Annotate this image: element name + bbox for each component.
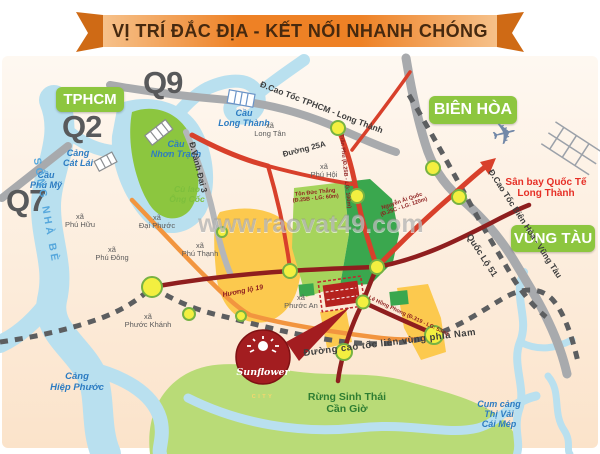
node-zone-west xyxy=(283,264,297,278)
label-xa-phu-dong: xã Phú Đông xyxy=(87,246,137,263)
watermark: www.raovat49.com xyxy=(198,210,400,238)
label-cum-cang-thi-vai: Cụm cảng Thị Vải Cái Mép xyxy=(458,399,540,429)
ribbon-end-right xyxy=(497,12,524,52)
node-center xyxy=(370,260,384,274)
node-north xyxy=(331,121,345,135)
label-xa-phuoc-khanh: xã Phước Khánh xyxy=(118,313,178,330)
node-west xyxy=(142,277,162,297)
label-forest-can-gio: Rừng Sinh Thái Cần Giờ xyxy=(296,392,398,416)
node-expwy-west xyxy=(183,308,195,320)
district-q2: Q2 xyxy=(62,110,101,145)
label-cang-cat-lai: Cảng Cát Lái xyxy=(52,148,104,168)
label-cang-hiep-phuoc: Cảng Hiệp Phước xyxy=(41,372,113,393)
district-q9: Q9 xyxy=(143,66,182,101)
node-ql51-south xyxy=(452,190,466,204)
label-xa-long-tan: xã Long Tân xyxy=(245,122,295,139)
label-cau-nhon-trach: Cầu Nhơn Trạch xyxy=(140,139,212,159)
ribbon-end-left xyxy=(76,12,103,52)
label-xa-phuoc-an: xã Phước An xyxy=(276,294,326,311)
node-huong-lo xyxy=(236,311,246,321)
label-xa-dai-phuoc: xã Đại Phước xyxy=(132,214,182,231)
label-xa-phu-huu: xã Phú Hữu xyxy=(55,213,105,230)
node-ton-duc-thang xyxy=(350,189,364,203)
logo-brand: Sunflower xyxy=(231,368,295,378)
logo-text: Sunflower CITY xyxy=(231,351,295,417)
zone-green-small-east xyxy=(389,290,408,306)
label-xa-phu-thanh: xã Phú Thạnh xyxy=(175,242,225,259)
page-title: VỊ TRÍ ĐẮC ĐỊA - KẾT NỐI NHANH CHÓNG xyxy=(103,21,497,41)
location-map: VỊ TRÍ ĐẮC ĐỊA - KẾT NỐI NHANH CHÓNG TPH… xyxy=(0,0,600,454)
logo-suffix: CITY xyxy=(231,395,295,401)
node-ql51-north xyxy=(426,161,440,175)
